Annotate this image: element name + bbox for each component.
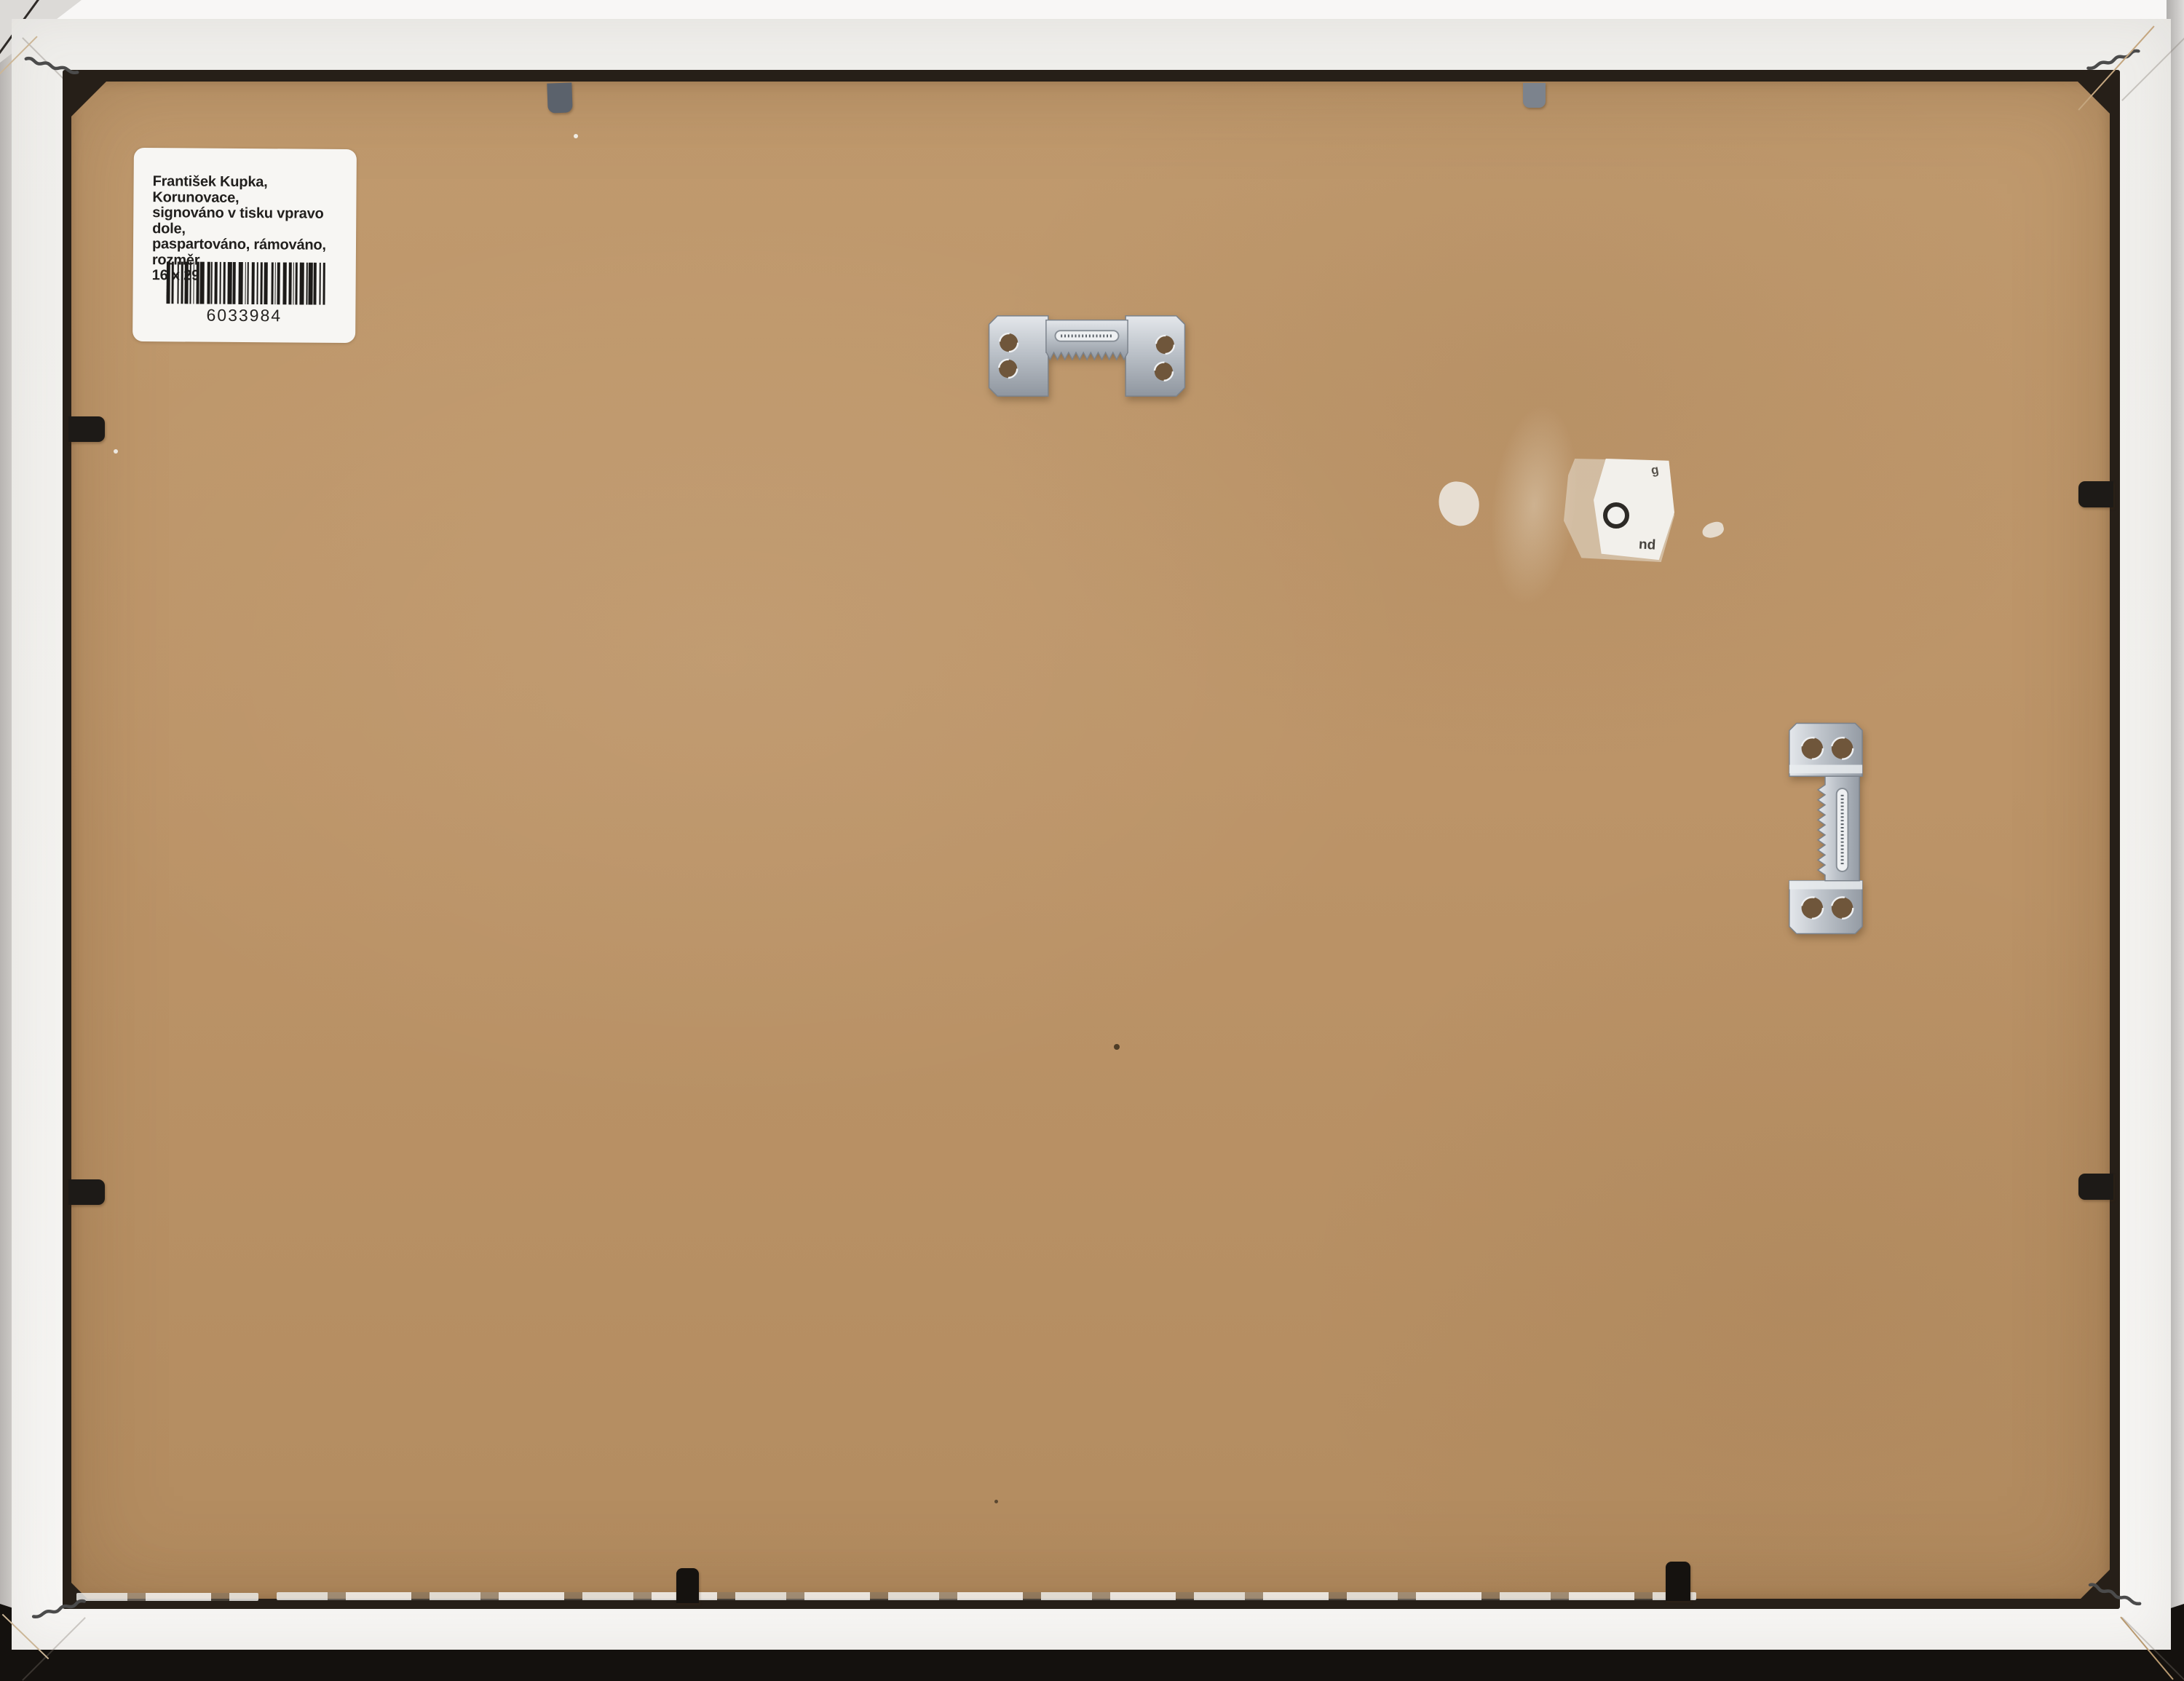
dark-speck-small [994, 1500, 998, 1503]
sticker-residue-text-fragment-bottom: pu [1638, 537, 1655, 553]
label-text-line-1: František Kupka, Korunovace, [152, 174, 349, 207]
white-speck [574, 134, 578, 138]
retainer-clip-right-upper [2078, 481, 2113, 507]
photo-background-bottom-shadow [0, 1648, 2184, 1681]
retainer-clip-top-left [547, 82, 572, 113]
inventory-label: František Kupka, Korunovace, signováno v… [132, 148, 357, 343]
foil-edge-reflection-left [76, 1593, 258, 1601]
dark-speck [1114, 1044, 1120, 1050]
sawtooth-hanger-right [1784, 719, 1867, 938]
barcode [166, 261, 328, 305]
label-text-line-2: signováno v tisku vpravo dole, [152, 205, 349, 238]
retainer-clip-bottom-left [676, 1568, 699, 1603]
frame-back-photo: František Kupka, Korunovace, signováno v… [0, 0, 2184, 1681]
foil-edge-reflection [277, 1592, 1696, 1600]
sticker-residue-large: g pu [1564, 459, 1674, 562]
barcode-number: 6033984 [132, 305, 355, 326]
retainer-clip-top-right [1523, 83, 1546, 108]
retainer-clip-bottom-right [1666, 1562, 1690, 1601]
retainer-clip-right-lower [2078, 1174, 2113, 1200]
sawtooth-hanger-top [984, 313, 1190, 399]
sticker-residue-ring-mark [1603, 502, 1629, 529]
white-speck-small [114, 449, 118, 454]
retainer-clip-left-upper [68, 416, 105, 442]
retainer-clip-left-lower [68, 1179, 105, 1205]
